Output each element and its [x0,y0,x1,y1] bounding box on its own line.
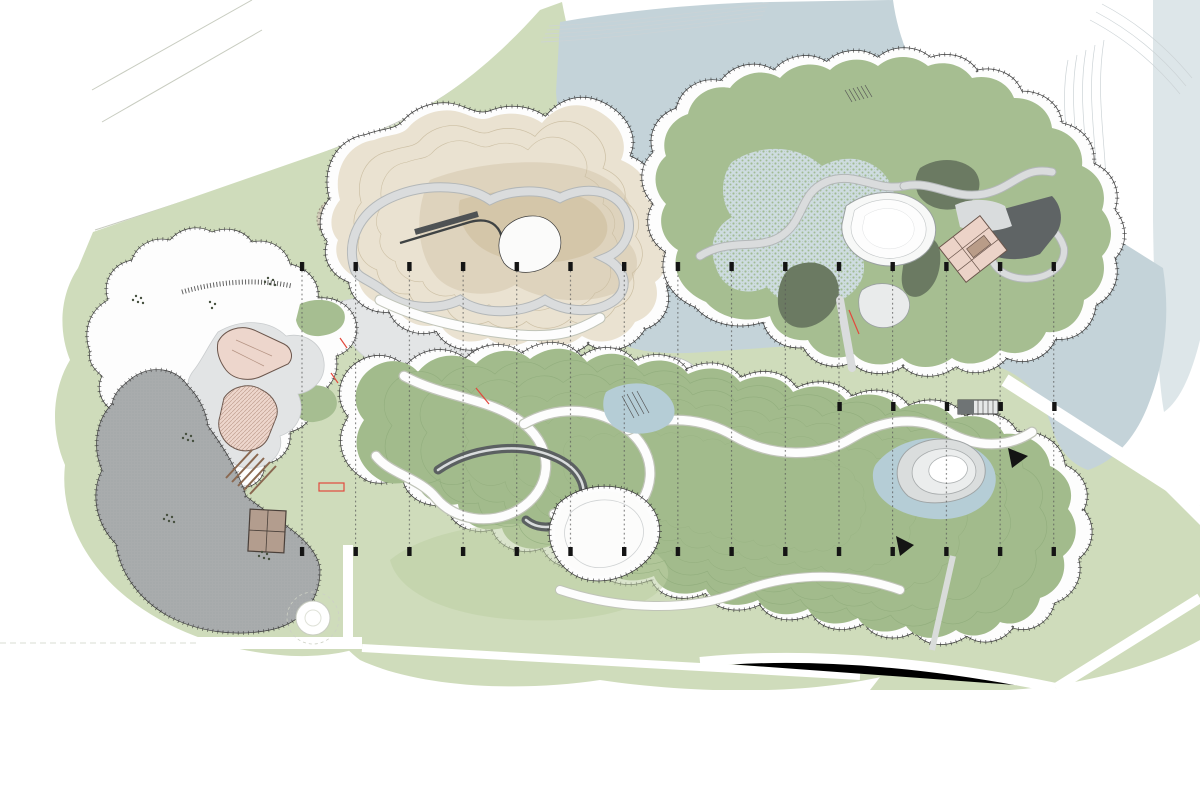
site-plan-sheet: Delugan Meissl Associated Architects Exp… [0,0,1200,800]
structural-grid [300,262,1057,556]
roundabout [296,601,330,635]
lawn-building [248,509,286,553]
plan-drawing [0,0,1200,690]
title-block: Delugan Meissl Associated Architects Exp… [0,690,1200,800]
